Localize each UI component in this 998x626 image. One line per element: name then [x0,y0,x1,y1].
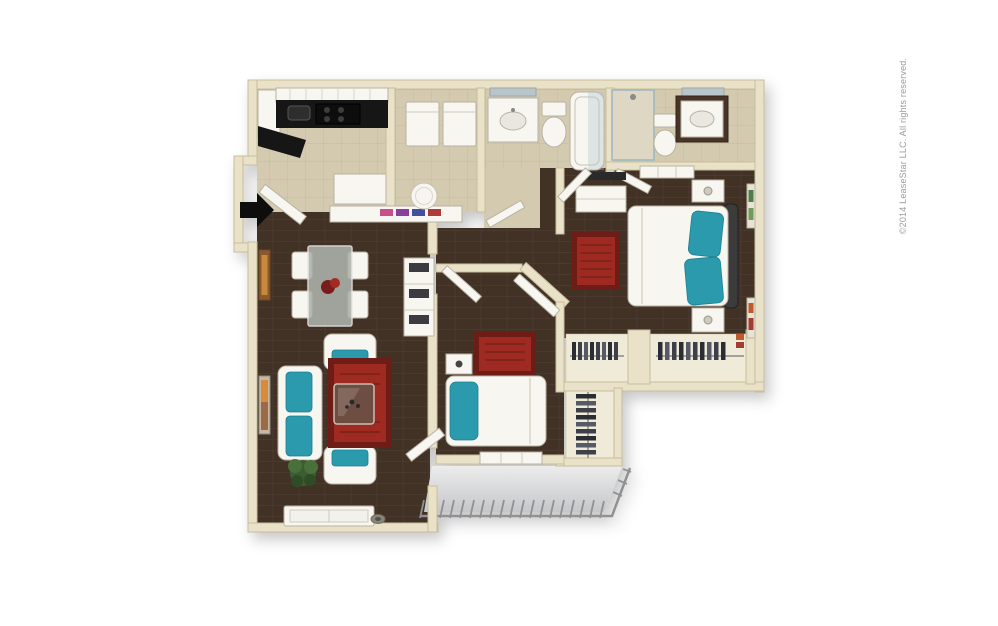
bedroom2-rug [474,332,536,376]
wall-laundry-right [477,88,485,212]
upper-cabinet-top [276,88,388,102]
washer [406,102,439,146]
wall-bed2closet-bottom [564,458,622,466]
master-pillow-1 [688,210,724,257]
shelf-unit [404,258,434,336]
potted-plant [288,459,318,487]
wall-tv [588,172,626,180]
copyright-watermark: ©2014 LeaseStar LLC. All rights reserved… [898,58,908,234]
shower-glass-bath1 [588,92,604,170]
living-wall-art [259,376,270,434]
wall-bedroom2-south-1 [436,455,480,464]
wall-bedroom2-east [556,302,564,392]
bedroom2-window [480,452,542,464]
kitchen-sink [288,106,310,120]
living-window [284,506,374,526]
mirror-bath1 [490,88,536,96]
laundry-basket [411,183,437,209]
lamp-north [704,187,712,195]
toilet-bowl-bath1 [542,117,566,147]
wall-bed2closet-right [614,388,622,466]
faucet-bath1 [511,108,515,112]
sofa [278,366,322,460]
dryer [443,102,476,146]
toilet-tank-bath2 [654,114,676,127]
armchair-south [324,446,376,484]
wall-left-upper [248,80,257,164]
floor-outlet [371,515,385,524]
shower-floor [612,90,654,160]
master-pillow-2 [684,257,724,306]
floor-plan [234,80,764,532]
bedroom2-lamp [456,361,463,368]
hall-neck-floor [540,168,558,230]
sink-bath2 [690,111,714,127]
floor-plan-figure: ©2014 LeaseStar LLC. All rights reserved… [0,0,998,626]
wall-closet-divider [628,330,650,384]
wall-left-lower [248,242,257,532]
coffee-table [334,384,374,424]
wall-bedroom2-south-2 [542,455,564,464]
master-rug [572,232,620,290]
master-window [640,166,694,178]
centerpiece-red [330,278,340,288]
sink-bath1 [500,112,526,130]
dining-wall-art [259,250,270,300]
shower-head [630,94,636,100]
wall-living-right-3 [428,486,437,532]
wall-art-east-2 [747,298,755,338]
toilet-bowl-bath2 [654,130,676,156]
wall-master-bottom [560,382,764,391]
stove [316,104,360,124]
lamp-south [704,316,712,324]
floor-plan-svg [0,0,998,626]
mirror-bath2 [682,88,724,96]
lower-cabinet [334,174,386,204]
master-closet-b-floor [650,334,746,384]
wall-right-outer [755,80,764,392]
bed2-closet-hanging-clothes [576,394,596,455]
bedroom2-pillow [450,382,478,440]
wall-art-east-1 [747,184,755,228]
patio [420,466,631,518]
toilet-tank-bath1 [542,102,566,116]
